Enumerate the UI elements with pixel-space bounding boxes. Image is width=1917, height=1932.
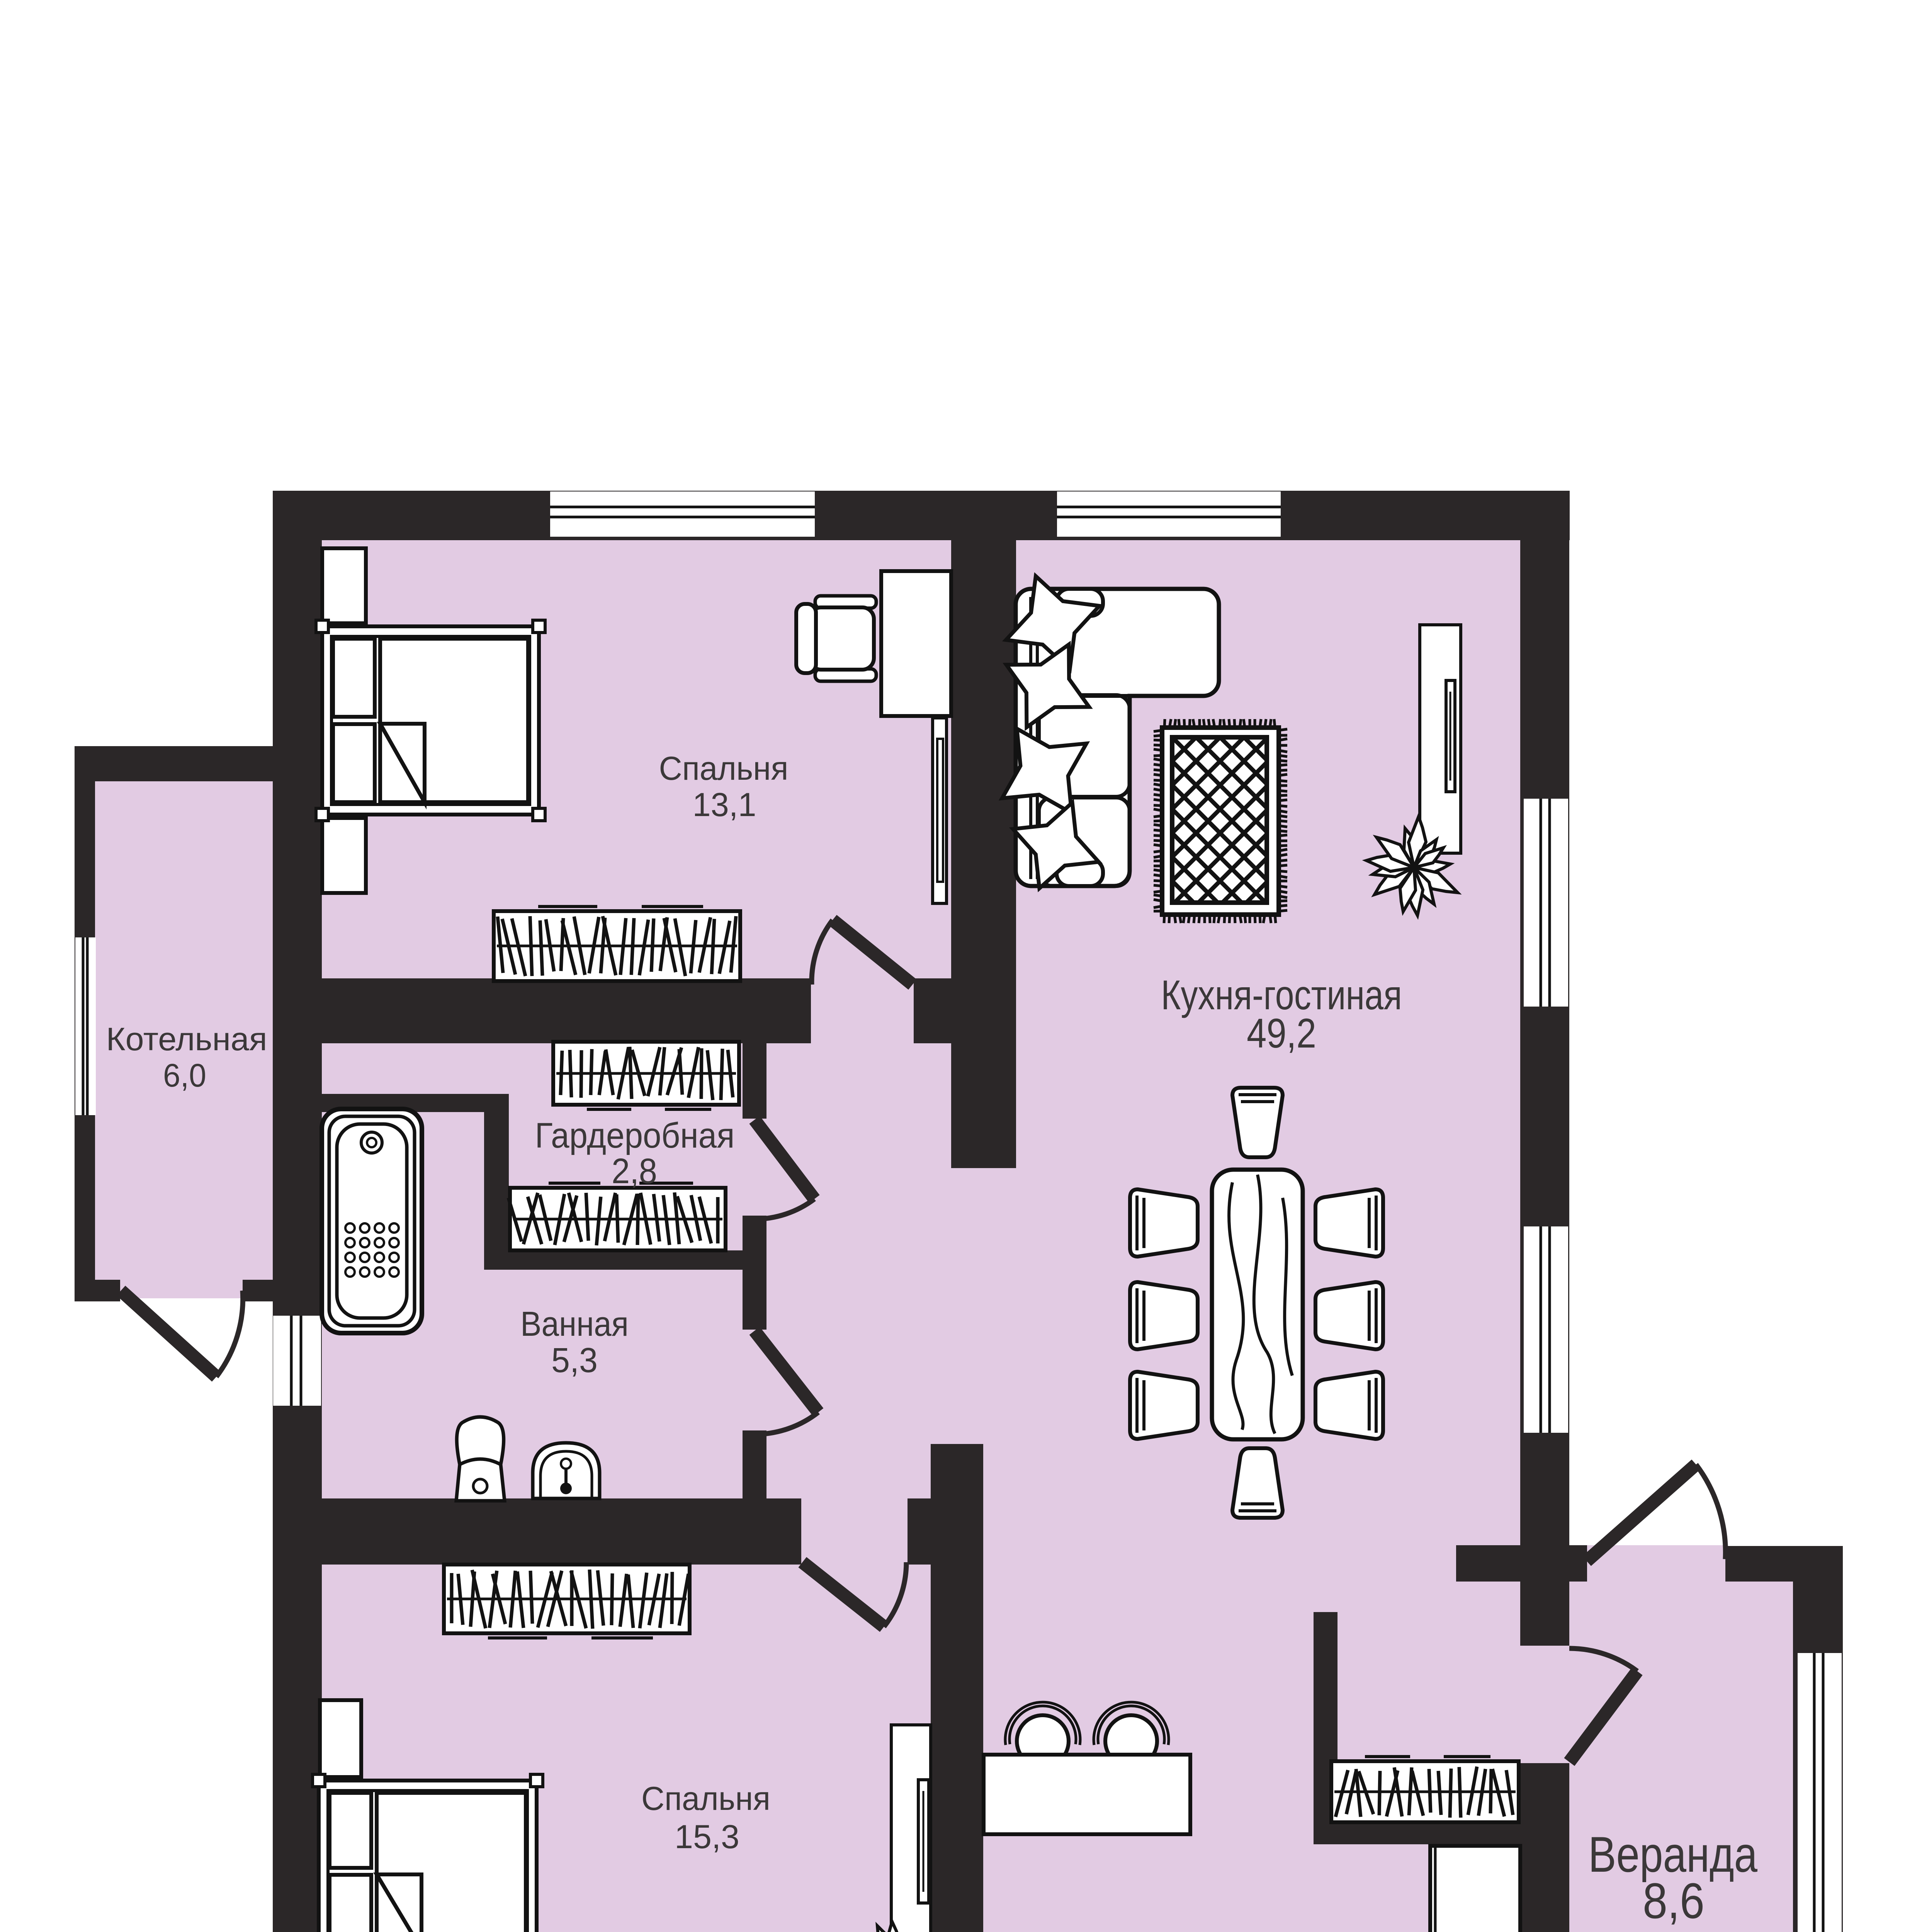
svg-text:Котельная: Котельная (106, 1021, 267, 1057)
svg-text:2,8: 2,8 (612, 1151, 657, 1191)
svg-text:15,3: 15,3 (675, 1818, 739, 1855)
svg-text:6,0: 6,0 (163, 1057, 206, 1094)
svg-text:Гардеробная: Гардеробная (535, 1116, 735, 1155)
svg-text:5,3: 5,3 (551, 1341, 598, 1380)
svg-text:Спальня: Спальня (659, 750, 789, 787)
svg-text:8,6: 8,6 (1643, 1872, 1705, 1929)
svg-text:13,1: 13,1 (693, 786, 756, 823)
svg-text:49,2: 49,2 (1247, 1010, 1316, 1056)
svg-text:Ванная: Ванная (520, 1305, 629, 1344)
svg-text:Спальня: Спальня (641, 1780, 770, 1817)
